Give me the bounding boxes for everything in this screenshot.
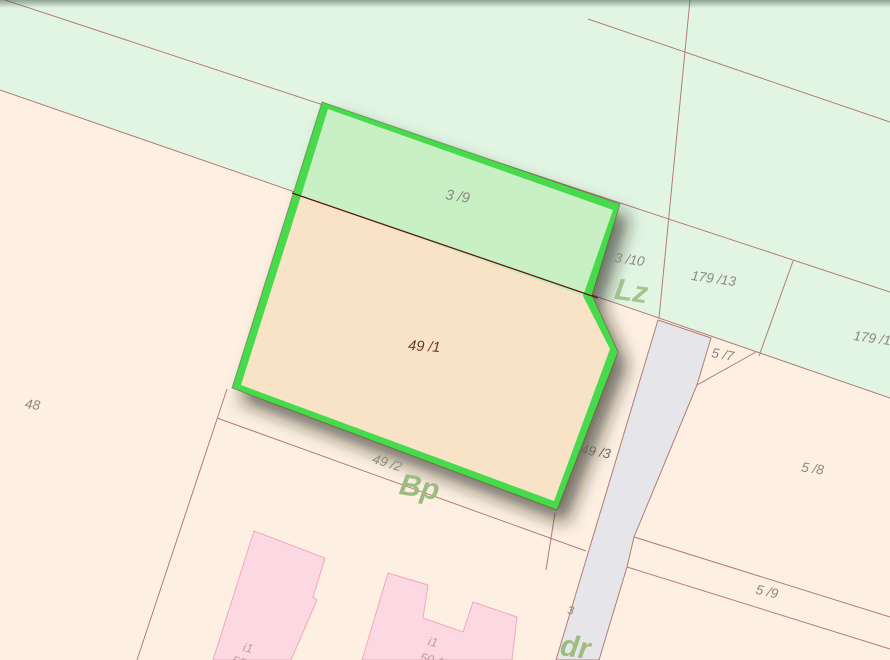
zone-label-bp: Bp (397, 468, 442, 507)
zone-label-lz: Lz (613, 273, 651, 310)
parcel-label-5-8: 5 /8 (800, 460, 825, 478)
parcel-label-48: 48 (24, 396, 41, 413)
viewport-top-shadow (0, 0, 890, 8)
zone-label-dr: dr (558, 629, 595, 660)
parcel-label-49-1: 49 /1 (408, 338, 441, 356)
map-viewport[interactable]: 3 /9 3 /10 179 /13 179 /1 5 /7 48 49 /2 … (0, 0, 890, 660)
cadastral-map[interactable]: 3 /9 3 /10 179 /13 179 /1 5 /7 48 49 /2 … (0, 0, 890, 660)
